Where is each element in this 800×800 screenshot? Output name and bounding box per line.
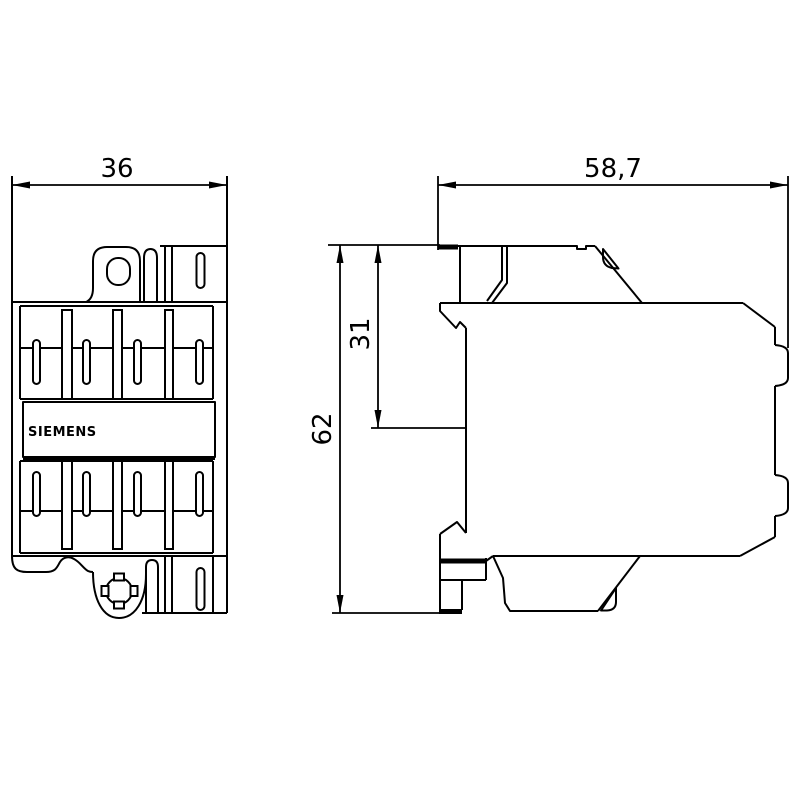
arrowhead-right bbox=[770, 182, 788, 189]
bottom-corner-detail bbox=[601, 588, 616, 611]
side-foot-pad bbox=[493, 556, 640, 611]
technical-drawing-page: 36 bbox=[0, 0, 800, 800]
side-height-dimension: 62 bbox=[308, 245, 440, 613]
front-bottom-section bbox=[12, 556, 227, 618]
terminal-divider bbox=[113, 310, 122, 399]
screw-slot bbox=[83, 340, 90, 384]
screw-slot bbox=[196, 340, 203, 384]
arrowhead-right bbox=[209, 182, 227, 189]
screw-slot bbox=[83, 472, 90, 516]
side-upper-height-dimension: 31 bbox=[346, 245, 466, 428]
terminal-divider bbox=[113, 461, 122, 549]
lug-hole bbox=[107, 258, 130, 285]
arrowhead-left bbox=[12, 182, 30, 189]
screw-slot bbox=[134, 340, 141, 384]
rail-channel-detail bbox=[492, 247, 507, 303]
screw-slot bbox=[33, 472, 40, 516]
terminal-divider bbox=[62, 310, 72, 399]
bottom-vent-slot bbox=[197, 568, 205, 610]
top-clip-slot bbox=[144, 249, 157, 302]
brand-label: SIEMENS bbox=[28, 425, 97, 440]
terminal-bump-lower bbox=[775, 475, 788, 516]
top-vent-slot bbox=[197, 253, 205, 288]
side-depth-value: 58,7 bbox=[584, 154, 642, 184]
keyhole-notch bbox=[114, 574, 124, 581]
side-view: 58,7 62 31 bbox=[308, 154, 788, 613]
screw-slot bbox=[196, 472, 203, 516]
bottom-clip-slot bbox=[146, 560, 158, 613]
terminal-divider bbox=[165, 310, 173, 399]
side-depth-dimension: 58,7 bbox=[438, 154, 788, 348]
front-width-dimension: 36 bbox=[12, 154, 227, 244]
side-upper-height-value: 31 bbox=[346, 317, 376, 350]
bottom-left-curl bbox=[12, 556, 93, 572]
keyhole-notch bbox=[102, 586, 109, 596]
arrowhead-up bbox=[337, 245, 344, 263]
lower-terminal-row bbox=[12, 461, 227, 556]
front-width-value: 36 bbox=[100, 154, 133, 184]
arrowhead-up bbox=[375, 245, 382, 263]
arrowhead-left bbox=[438, 182, 456, 189]
screw-slot bbox=[134, 472, 141, 516]
mounting-lug-top bbox=[86, 246, 205, 302]
front-view: 36 bbox=[12, 154, 227, 618]
keyhole bbox=[106, 578, 132, 604]
arrowhead-down bbox=[375, 410, 382, 428]
side-height-value: 62 bbox=[308, 412, 338, 445]
dimensional-drawing: 36 bbox=[0, 0, 800, 800]
din-rail-clip bbox=[439, 303, 493, 612]
terminal-divider bbox=[62, 461, 72, 549]
label-band: SIEMENS bbox=[23, 402, 215, 459]
side-outline bbox=[438, 246, 788, 556]
keyhole-notch bbox=[114, 602, 124, 609]
arrowhead-down bbox=[337, 595, 344, 613]
upper-terminal-row bbox=[20, 306, 213, 399]
keyhole-notch bbox=[131, 586, 138, 596]
screw-slot bbox=[33, 340, 40, 384]
terminal-bump-upper bbox=[775, 345, 788, 386]
terminal-divider bbox=[165, 461, 173, 549]
